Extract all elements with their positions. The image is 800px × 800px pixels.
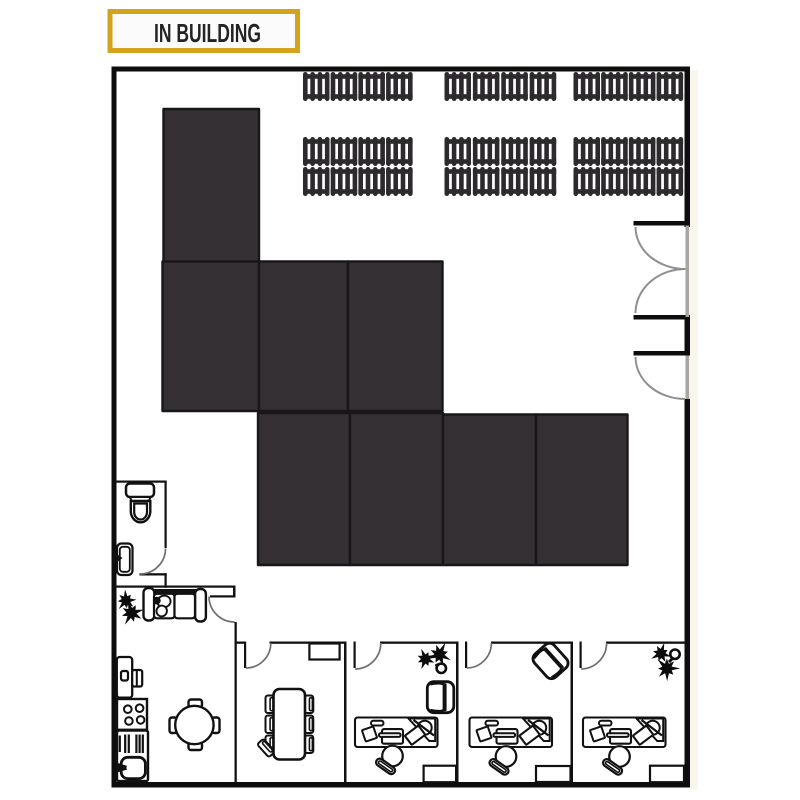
svg-text:IN BUILDING: IN BUILDING (154, 18, 261, 48)
